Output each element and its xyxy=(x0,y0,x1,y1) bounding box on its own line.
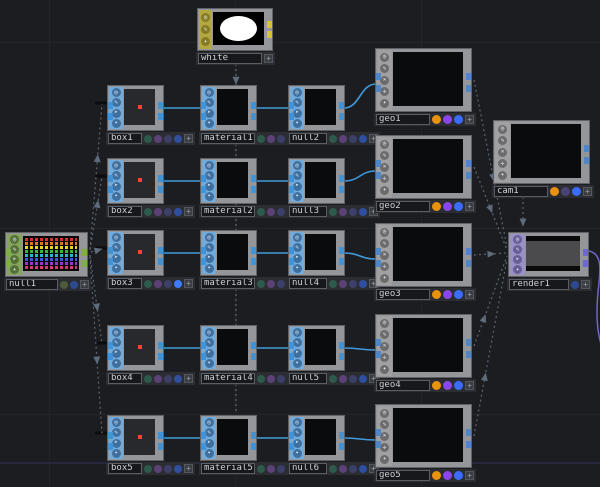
node-name-label[interactable]: null3 xyxy=(289,206,327,217)
output-connector[interactable] xyxy=(339,175,344,182)
input-connector[interactable] xyxy=(201,258,206,265)
node-geo4[interactable]: ◎✎✕✛✦geo4+ xyxy=(375,314,472,378)
node-name-label[interactable]: null1 xyxy=(6,279,58,290)
viewer-active-flag-icon[interactable]: ◎ xyxy=(112,88,121,97)
input-connector[interactable] xyxy=(376,160,381,167)
node-name-label[interactable]: box3 xyxy=(108,278,142,289)
input-connector[interactable] xyxy=(108,113,113,120)
expand-button[interactable]: + xyxy=(184,279,193,288)
node-body[interactable]: ◎✎➤✦ xyxy=(288,85,345,131)
expand-button[interactable]: + xyxy=(80,280,89,289)
node-body[interactable]: ◎✎➤✦ xyxy=(200,415,257,461)
output-connector[interactable] xyxy=(158,258,163,265)
input-connector[interactable] xyxy=(108,247,113,254)
node-box2[interactable]: ◎✎➤✦box2+ xyxy=(107,158,164,204)
output-connector[interactable] xyxy=(466,172,471,179)
node-body[interactable]: ◎✎➤✦ xyxy=(107,85,164,131)
node-body[interactable]: ◎✎➤✦ xyxy=(107,230,164,276)
output-connector[interactable] xyxy=(251,113,256,120)
flag-dot[interactable] xyxy=(164,135,172,143)
output-connector[interactable] xyxy=(158,432,163,439)
node-body[interactable]: ◎✎➤✦ xyxy=(200,325,257,371)
input-connector[interactable] xyxy=(201,102,206,109)
input-connector[interactable] xyxy=(289,175,294,182)
input-connector[interactable] xyxy=(201,175,206,182)
input-connector[interactable] xyxy=(201,353,206,360)
viewer-active-flag-icon[interactable]: ◎ xyxy=(293,418,302,427)
expand-button[interactable]: + xyxy=(184,134,193,143)
input-connector[interactable] xyxy=(376,260,381,267)
expand-button[interactable]: + xyxy=(465,202,474,211)
edit-flag-icon[interactable]: ✎ xyxy=(380,239,389,248)
input-connector[interactable] xyxy=(376,248,381,255)
flag-dot[interactable] xyxy=(454,115,463,124)
flag-dot[interactable] xyxy=(267,135,275,143)
edit-flag-icon[interactable]: ✎ xyxy=(380,330,389,339)
render-output-wire[interactable] xyxy=(589,251,600,344)
edit-flag-icon[interactable]: ✎ xyxy=(498,136,507,145)
reference-wire[interactable] xyxy=(474,256,507,346)
node-body[interactable]: ◎✎➤✦ xyxy=(107,158,164,204)
flag-dot[interactable] xyxy=(550,187,559,196)
input-connector[interactable] xyxy=(376,172,381,179)
node-name-label[interactable]: white xyxy=(198,53,262,64)
expand-button[interactable]: + xyxy=(264,54,273,63)
expand-button[interactable]: + xyxy=(184,207,193,216)
flag-dot[interactable] xyxy=(277,280,285,288)
flag-dot[interactable] xyxy=(174,135,182,143)
flag-dot[interactable] xyxy=(359,208,367,216)
node-body[interactable]: ◎✎➤✦ xyxy=(288,230,345,276)
node-body[interactable]: ◎✎➤✦ xyxy=(107,415,164,461)
output-connector[interactable] xyxy=(339,353,344,360)
pick-flag-icon[interactable]: ✛ xyxy=(380,262,389,271)
flag-dot[interactable] xyxy=(277,465,285,473)
node-geo5[interactable]: ◎✎✕✛✦geo5+ xyxy=(375,404,472,468)
output-connector[interactable] xyxy=(251,175,256,182)
flag-dot[interactable] xyxy=(277,375,285,383)
display-flag-icon[interactable]: ✦ xyxy=(293,119,302,128)
viewer-active-flag-icon[interactable]: ◎ xyxy=(10,235,19,244)
pick-flag-icon[interactable]: ✛ xyxy=(498,159,507,168)
output-connector[interactable] xyxy=(466,85,471,92)
wire[interactable] xyxy=(344,253,376,259)
flag-dot[interactable] xyxy=(257,208,265,216)
render-flag-icon[interactable]: ✕ xyxy=(380,432,389,441)
viewer-active-flag-icon[interactable]: ◎ xyxy=(201,13,210,22)
node-material5[interactable]: ◎✎➤✦material5+ xyxy=(200,415,257,461)
node-box4[interactable]: ◎✎➤✦box4+ xyxy=(107,325,164,371)
flag-dot[interactable] xyxy=(144,135,152,143)
expand-button[interactable]: + xyxy=(465,290,474,299)
input-connector[interactable] xyxy=(108,353,113,360)
output-connector[interactable] xyxy=(339,247,344,254)
input-connector[interactable] xyxy=(376,85,381,92)
edit-flag-icon[interactable]: ✎ xyxy=(10,245,19,254)
output-connector[interactable] xyxy=(584,157,589,164)
flag-dot[interactable] xyxy=(349,465,357,473)
display-flag-icon[interactable]: ✦ xyxy=(112,264,121,273)
input-connector[interactable] xyxy=(376,429,381,436)
node-material3[interactable]: ◎✎➤✦material3+ xyxy=(200,230,257,276)
node-box5[interactable]: ◎✎➤✦box5+ xyxy=(107,415,164,461)
flag-dot[interactable] xyxy=(349,375,357,383)
node-name-label[interactable]: material5 xyxy=(201,463,255,474)
display-flag-icon[interactable]: ✦ xyxy=(293,192,302,201)
viewer-active-flag-icon[interactable]: ◎ xyxy=(380,319,389,328)
expand-button[interactable]: + xyxy=(465,381,474,390)
output-connector[interactable] xyxy=(339,102,344,109)
flag-dot[interactable] xyxy=(329,280,337,288)
node-geo1[interactable]: ◎✎✕✛✦geo1+ xyxy=(375,48,472,112)
output-connector[interactable] xyxy=(584,145,589,152)
display-flag-icon[interactable]: ✦ xyxy=(293,264,302,273)
output-connector[interactable] xyxy=(158,175,163,182)
input-connector[interactable] xyxy=(376,73,381,80)
flag-dot[interactable] xyxy=(359,465,367,473)
node-null5[interactable]: ◎✎➤✦null5+ xyxy=(288,325,345,371)
input-connector[interactable] xyxy=(108,443,113,450)
flag-dot[interactable] xyxy=(144,465,152,473)
output-connector[interactable] xyxy=(251,443,256,450)
display-flag-icon[interactable]: ✦ xyxy=(205,192,214,201)
display-flag-icon[interactable]: ✦ xyxy=(112,192,121,201)
expand-button[interactable]: + xyxy=(184,464,193,473)
viewer-active-flag-icon[interactable]: ◎ xyxy=(112,418,121,427)
input-connector[interactable] xyxy=(289,443,294,450)
output-connector[interactable] xyxy=(251,342,256,349)
flag-dot[interactable] xyxy=(454,202,463,211)
output-connector[interactable] xyxy=(339,443,344,450)
output-connector[interactable] xyxy=(466,351,471,358)
expand-button[interactable]: + xyxy=(583,187,592,196)
flag-dot[interactable] xyxy=(443,202,452,211)
display-flag-icon[interactable]: ✦ xyxy=(112,359,121,368)
viewer-active-flag-icon[interactable]: ◎ xyxy=(205,161,214,170)
display-flag-icon[interactable]: ✦ xyxy=(205,359,214,368)
output-connector[interactable] xyxy=(158,247,163,254)
output-connector[interactable] xyxy=(158,353,163,360)
node-name-label[interactable]: geo2 xyxy=(376,201,430,212)
node-name-label[interactable]: null6 xyxy=(289,463,327,474)
flag-dot[interactable] xyxy=(144,375,152,383)
network-canvas[interactable]: ◎✎✦white+◎✎➤✦null1+◎✎➤✦box1+◎✎➤✦box2+◎✎➤… xyxy=(0,0,600,487)
node-material4[interactable]: ◎✎➤✦material4+ xyxy=(200,325,257,371)
output-connector[interactable] xyxy=(466,248,471,255)
input-connector[interactable] xyxy=(201,113,206,120)
expand-button[interactable]: + xyxy=(465,471,474,480)
node-body[interactable]: ◎✎➤✦ xyxy=(288,415,345,461)
display-flag-icon[interactable]: ✦ xyxy=(293,359,302,368)
output-connector[interactable] xyxy=(583,260,588,267)
node-body[interactable]: ◎✎✕✛✦ xyxy=(375,223,472,287)
flag-dot[interactable] xyxy=(454,471,463,480)
node-cam1[interactable]: ◎✎✕✛✦cam1+ xyxy=(493,120,590,184)
node-material2[interactable]: ◎✎➤✦material2+ xyxy=(200,158,257,204)
node-body[interactable]: ◎✎✕✛✦ xyxy=(375,135,472,199)
edit-flag-icon[interactable]: ✎ xyxy=(513,245,522,254)
flag-dot[interactable] xyxy=(267,465,275,473)
output-connector[interactable] xyxy=(583,249,588,256)
output-connector[interactable] xyxy=(466,260,471,267)
bypass-flag-icon[interactable]: ➤ xyxy=(10,255,19,264)
input-connector[interactable] xyxy=(289,247,294,254)
node-material1[interactable]: ◎✎➤✦material1+ xyxy=(200,85,257,131)
expand-button[interactable]: + xyxy=(184,374,193,383)
flag-dot[interactable] xyxy=(432,471,441,480)
node-name-label[interactable]: geo4 xyxy=(376,380,430,391)
edit-flag-icon[interactable]: ✎ xyxy=(201,25,210,34)
node-body[interactable]: ◎✎➤✦ xyxy=(107,325,164,371)
flag-dot[interactable] xyxy=(572,187,581,196)
flag-dot[interactable] xyxy=(174,208,182,216)
input-connector[interactable] xyxy=(201,247,206,254)
flag-dot[interactable] xyxy=(329,208,337,216)
node-name-label[interactable]: null5 xyxy=(289,373,327,384)
input-connector[interactable] xyxy=(289,102,294,109)
input-connector[interactable] xyxy=(289,186,294,193)
output-connector[interactable] xyxy=(158,342,163,349)
flag-dot[interactable] xyxy=(432,381,441,390)
render-flag-icon[interactable]: ✕ xyxy=(380,342,389,351)
viewer-active-flag-icon[interactable]: ◎ xyxy=(498,125,507,134)
output-connector[interactable] xyxy=(158,113,163,120)
flag-dot[interactable] xyxy=(443,290,452,299)
flag-dot[interactable] xyxy=(267,280,275,288)
flag-dot[interactable] xyxy=(267,375,275,383)
render-flag-icon[interactable]: ✕ xyxy=(380,251,389,260)
display-flag-icon[interactable]: ✦ xyxy=(498,171,507,180)
wire[interactable] xyxy=(344,438,376,440)
flag-dot[interactable] xyxy=(257,135,265,143)
input-connector[interactable] xyxy=(289,258,294,265)
output-connector[interactable] xyxy=(466,160,471,167)
input-connector[interactable] xyxy=(108,432,113,439)
viewer-active-flag-icon[interactable]: ◎ xyxy=(380,409,389,418)
output-connector[interactable] xyxy=(466,339,471,346)
edit-flag-icon[interactable]: ✎ xyxy=(380,151,389,160)
flag-dot[interactable] xyxy=(443,471,452,480)
node-body[interactable]: ◎✎➤✦ xyxy=(288,158,345,204)
output-connector[interactable] xyxy=(466,441,471,448)
display-flag-icon[interactable]: ✦ xyxy=(205,119,214,128)
pick-flag-icon[interactable]: ✛ xyxy=(380,353,389,362)
flag-dot[interactable] xyxy=(144,280,152,288)
output-connector[interactable] xyxy=(466,429,471,436)
pick-flag-icon[interactable]: ✛ xyxy=(380,87,389,96)
output-connector[interactable] xyxy=(82,249,87,256)
flag-dot[interactable] xyxy=(267,208,275,216)
viewer-active-flag-icon[interactable]: ◎ xyxy=(293,161,302,170)
flag-dot[interactable] xyxy=(571,281,579,289)
flag-dot[interactable] xyxy=(164,280,172,288)
flag-dot[interactable] xyxy=(454,381,463,390)
flag-dot[interactable] xyxy=(329,375,337,383)
output-connector[interactable] xyxy=(82,260,87,267)
flag-dot[interactable] xyxy=(432,115,441,124)
flag-dot[interactable] xyxy=(257,465,265,473)
flag-dot[interactable] xyxy=(154,375,162,383)
wire[interactable] xyxy=(344,84,376,108)
flag-dot[interactable] xyxy=(339,465,347,473)
node-null2[interactable]: ◎✎➤✦null2+ xyxy=(288,85,345,131)
node-name-label[interactable]: box1 xyxy=(108,133,142,144)
display-flag-icon[interactable]: ✦ xyxy=(112,119,121,128)
input-connector[interactable] xyxy=(289,353,294,360)
flag-dot[interactable] xyxy=(339,280,347,288)
bypass-flag-icon[interactable]: ➤ xyxy=(513,255,522,264)
node-box1[interactable]: ◎✎➤✦box1+ xyxy=(107,85,164,131)
flag-dot[interactable] xyxy=(339,375,347,383)
output-connector[interactable] xyxy=(158,102,163,109)
render-flag-icon[interactable]: ✕ xyxy=(380,76,389,85)
input-connector[interactable] xyxy=(6,249,11,256)
reference-wire[interactable] xyxy=(474,259,507,436)
node-name-label[interactable]: cam1 xyxy=(494,186,548,197)
flag-dot[interactable] xyxy=(257,375,265,383)
node-name-label[interactable]: geo1 xyxy=(376,114,430,125)
flag-dot[interactable] xyxy=(70,281,78,289)
input-connector[interactable] xyxy=(289,113,294,120)
display-flag-icon[interactable]: ✦ xyxy=(112,449,121,458)
viewer-active-flag-icon[interactable]: ◎ xyxy=(380,140,389,149)
flag-dot[interactable] xyxy=(144,208,152,216)
input-connector[interactable] xyxy=(201,432,206,439)
display-flag-icon[interactable]: ✦ xyxy=(205,449,214,458)
viewer-active-flag-icon[interactable]: ◎ xyxy=(513,235,522,244)
node-body[interactable]: ◎✎➤✦ xyxy=(200,158,257,204)
output-connector[interactable] xyxy=(251,247,256,254)
flag-dot[interactable] xyxy=(164,465,172,473)
output-connector[interactable] xyxy=(339,258,344,265)
output-connector[interactable] xyxy=(158,443,163,450)
output-connector[interactable] xyxy=(267,21,272,28)
flag-dot[interactable] xyxy=(164,208,172,216)
viewer-active-flag-icon[interactable]: ◎ xyxy=(380,228,389,237)
display-flag-icon[interactable]: ✦ xyxy=(513,265,522,274)
display-flag-icon[interactable]: ✦ xyxy=(380,365,389,374)
reference-wire[interactable] xyxy=(90,257,102,434)
flag-dot[interactable] xyxy=(443,381,452,390)
input-connector[interactable] xyxy=(289,342,294,349)
node-body[interactable]: ◎✎✦ xyxy=(197,8,273,51)
node-name-label[interactable]: render1 xyxy=(509,279,569,290)
node-name-label[interactable]: null4 xyxy=(289,278,327,289)
output-connector[interactable] xyxy=(466,73,471,80)
flag-dot[interactable] xyxy=(349,135,357,143)
node-null1[interactable]: ◎✎➤✦null1+ xyxy=(5,232,88,277)
display-flag-icon[interactable]: ✦ xyxy=(380,455,389,464)
input-connector[interactable] xyxy=(201,342,206,349)
node-body[interactable]: ◎✎➤✦ xyxy=(288,325,345,371)
input-connector[interactable] xyxy=(376,441,381,448)
output-connector[interactable] xyxy=(339,186,344,193)
flag-dot[interactable] xyxy=(339,135,347,143)
viewer-active-flag-icon[interactable]: ◎ xyxy=(293,328,302,337)
node-name-label[interactable]: material3 xyxy=(201,278,255,289)
node-null6[interactable]: ◎✎➤✦null6+ xyxy=(288,415,345,461)
flag-dot[interactable] xyxy=(432,202,441,211)
output-connector[interactable] xyxy=(251,186,256,193)
node-name-label[interactable]: null2 xyxy=(289,133,327,144)
node-null3[interactable]: ◎✎➤✦null3+ xyxy=(288,158,345,204)
flag-dot[interactable] xyxy=(339,208,347,216)
flag-dot[interactable] xyxy=(329,135,337,143)
display-flag-icon[interactable]: ✦ xyxy=(380,186,389,195)
viewer-active-flag-icon[interactable]: ◎ xyxy=(205,418,214,427)
viewer-active-flag-icon[interactable]: ◎ xyxy=(293,233,302,242)
input-connector[interactable] xyxy=(108,342,113,349)
viewer-active-flag-icon[interactable]: ◎ xyxy=(205,233,214,242)
flag-dot[interactable] xyxy=(454,290,463,299)
input-connector[interactable] xyxy=(108,102,113,109)
node-body[interactable]: ◎✎✕✛✦ xyxy=(375,314,472,378)
flag-dot[interactable] xyxy=(154,280,162,288)
display-flag-icon[interactable]: ✦ xyxy=(201,37,210,46)
flag-dot[interactable] xyxy=(277,208,285,216)
node-white[interactable]: ◎✎✦white+ xyxy=(197,8,273,51)
flag-dot[interactable] xyxy=(349,208,357,216)
edit-flag-icon[interactable]: ✎ xyxy=(380,64,389,73)
flag-dot[interactable] xyxy=(359,280,367,288)
flag-dot[interactable] xyxy=(154,135,162,143)
node-name-label[interactable]: box2 xyxy=(108,206,142,217)
node-body[interactable]: ◎✎➤✦ xyxy=(508,232,589,277)
reference-wire[interactable] xyxy=(90,255,102,344)
node-geo3[interactable]: ◎✎✕✛✦geo3+ xyxy=(375,223,472,287)
reference-wire[interactable] xyxy=(90,177,102,250)
output-connector[interactable] xyxy=(339,432,344,439)
flag-dot[interactable] xyxy=(277,135,285,143)
input-connector[interactable] xyxy=(201,443,206,450)
output-connector[interactable] xyxy=(158,186,163,193)
node-body[interactable]: ◎✎➤✦ xyxy=(5,232,88,277)
input-connector[interactable] xyxy=(6,260,11,267)
flag-dot[interactable] xyxy=(359,375,367,383)
input-connector[interactable] xyxy=(108,258,113,265)
input-connector[interactable] xyxy=(108,175,113,182)
viewer-active-flag-icon[interactable]: ◎ xyxy=(112,328,121,337)
flag-dot[interactable] xyxy=(174,465,182,473)
node-name-label[interactable]: box4 xyxy=(108,373,142,384)
output-connector[interactable] xyxy=(251,102,256,109)
flag-dot[interactable] xyxy=(257,280,265,288)
node-body[interactable]: ◎✎➤✦ xyxy=(200,230,257,276)
input-connector[interactable] xyxy=(201,186,206,193)
wire[interactable] xyxy=(344,171,376,181)
pick-flag-icon[interactable]: ✛ xyxy=(380,443,389,452)
flag-dot[interactable] xyxy=(329,465,337,473)
display-flag-icon[interactable]: ✦ xyxy=(293,449,302,458)
viewer-active-flag-icon[interactable]: ◎ xyxy=(112,233,121,242)
node-name-label[interactable]: material2 xyxy=(201,206,255,217)
input-connector[interactable] xyxy=(289,432,294,439)
pick-flag-icon[interactable]: ✛ xyxy=(380,174,389,183)
flag-dot[interactable] xyxy=(432,290,441,299)
input-connector[interactable] xyxy=(376,351,381,358)
node-body[interactable]: ◎✎✕✛✦ xyxy=(375,48,472,112)
expand-button[interactable]: + xyxy=(581,280,590,289)
viewer-active-flag-icon[interactable]: ◎ xyxy=(205,328,214,337)
input-connector[interactable] xyxy=(376,339,381,346)
node-geo2[interactable]: ◎✎✕✛✦geo2+ xyxy=(375,135,472,199)
render-flag-icon[interactable]: ✕ xyxy=(380,163,389,172)
node-box3[interactable]: ◎✎➤✦box3+ xyxy=(107,230,164,276)
output-connector[interactable] xyxy=(251,432,256,439)
flag-dot[interactable] xyxy=(60,281,68,289)
node-name-label[interactable]: box5 xyxy=(108,463,142,474)
node-name-label[interactable]: material1 xyxy=(201,133,255,144)
